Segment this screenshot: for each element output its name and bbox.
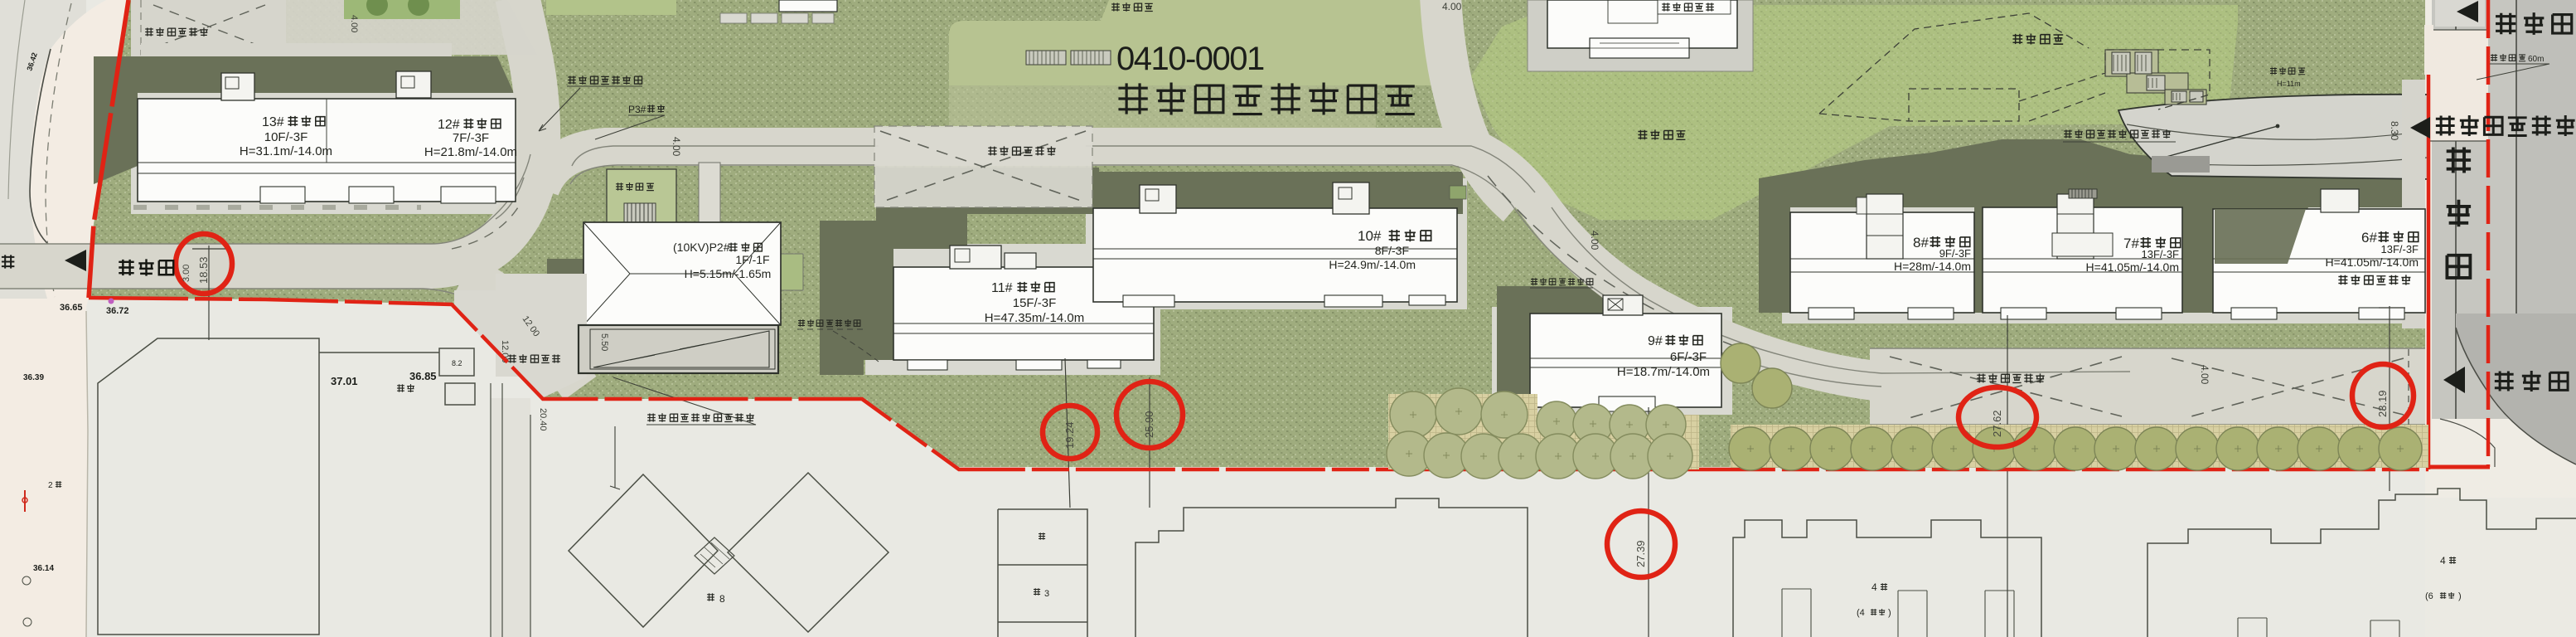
svg-text:P3#: P3# — [628, 104, 646, 115]
svg-text:36.65: 36.65 — [60, 303, 83, 313]
svg-text:H=11m: H=11m — [2277, 80, 2301, 88]
svg-text:60m: 60m — [2528, 55, 2544, 64]
svg-text:10#: 10# — [1358, 228, 1382, 244]
svg-text:9#: 9# — [1648, 334, 1663, 348]
svg-text:13#: 13# — [262, 115, 284, 129]
svg-text:2: 2 — [48, 481, 53, 490]
svg-text:8#: 8# — [1913, 235, 1929, 250]
svg-text:15F/-3F: 15F/-3F — [1013, 296, 1057, 310]
svg-text:10F/-3F: 10F/-3F — [264, 130, 308, 144]
svg-text:(4: (4 — [1857, 608, 1865, 618]
svg-text:4.00: 4.00 — [671, 137, 682, 157]
svg-text:27.39: 27.39 — [1634, 540, 1647, 567]
svg-text:3.00: 3.00 — [182, 265, 191, 282]
svg-text:19.24: 19.24 — [1063, 421, 1076, 449]
svg-text:4: 4 — [2440, 555, 2446, 566]
svg-text:8.30: 8.30 — [2389, 121, 2400, 141]
svg-text:0410-0001: 0410-0001 — [1116, 41, 1264, 77]
svg-text:4.00: 4.00 — [349, 15, 359, 32]
svg-text:6#: 6# — [2361, 230, 2377, 246]
svg-text:H=18.7m/-14.0m: H=18.7m/-14.0m — [1617, 365, 1710, 379]
svg-text:): ) — [1888, 608, 1891, 618]
svg-text:13F/-3F: 13F/-3F — [2141, 248, 2179, 260]
svg-text:H=5.15m/-1.65m: H=5.15m/-1.65m — [685, 267, 772, 280]
svg-text:5.50: 5.50 — [599, 333, 609, 351]
svg-text:37.01: 37.01 — [331, 375, 358, 387]
svg-text:12#: 12# — [438, 118, 460, 132]
svg-text:H=41.05m/-14.0m: H=41.05m/-14.0m — [2326, 255, 2419, 269]
svg-text:36.85: 36.85 — [409, 370, 437, 382]
svg-text:25.90: 25.90 — [1143, 411, 1155, 438]
svg-text:): ) — [2458, 591, 2462, 601]
svg-text:23.19: 23.19 — [2376, 390, 2389, 417]
svg-text:36.14: 36.14 — [33, 564, 54, 573]
svg-text:13F/-3F: 13F/-3F — [2380, 243, 2419, 255]
svg-text:(10KV)P2#: (10KV)P2# — [673, 241, 730, 254]
svg-text:8: 8 — [719, 593, 725, 605]
svg-text:3: 3 — [1044, 589, 1049, 599]
svg-text:4.00: 4.00 — [1589, 231, 1600, 250]
svg-text:11#: 11# — [991, 281, 1013, 295]
svg-text:H=41.05m/-14.0m: H=41.05m/-14.0m — [2086, 260, 2179, 274]
svg-text:(6: (6 — [2425, 591, 2433, 601]
svg-text:H=28m/-14.0m: H=28m/-14.0m — [1894, 260, 1971, 273]
svg-text:7#: 7# — [2123, 236, 2139, 251]
svg-text:4: 4 — [1871, 581, 1877, 593]
svg-text:27.62: 27.62 — [1991, 410, 2003, 437]
svg-text:36.39: 36.39 — [23, 373, 44, 382]
svg-text:9F/-3F: 9F/-3F — [1939, 247, 1971, 260]
svg-text:H=47.35m/-14.0m: H=47.35m/-14.0m — [985, 311, 1084, 325]
svg-text:8.2: 8.2 — [452, 359, 462, 367]
svg-text:4.00: 4.00 — [1442, 1, 1462, 12]
svg-text:20.40: 20.40 — [538, 408, 548, 431]
svg-text:8F/-3F: 8F/-3F — [1375, 244, 1409, 257]
svg-text:36.72: 36.72 — [106, 306, 129, 316]
svg-text:1F/-1F: 1F/-1F — [735, 253, 769, 266]
svg-text:H=24.9m/-14.0m: H=24.9m/-14.0m — [1329, 258, 1416, 271]
svg-text:4.00: 4.00 — [2199, 365, 2210, 385]
svg-text:7F/-3F: 7F/-3F — [453, 131, 489, 145]
svg-text:6F/-3F: 6F/-3F — [1670, 350, 1707, 364]
svg-text:H=21.8m/-14.0m: H=21.8m/-14.0m — [424, 145, 517, 159]
svg-text:H=31.1m/-14.0m: H=31.1m/-14.0m — [240, 144, 332, 158]
svg-text:18.53: 18.53 — [197, 256, 210, 284]
